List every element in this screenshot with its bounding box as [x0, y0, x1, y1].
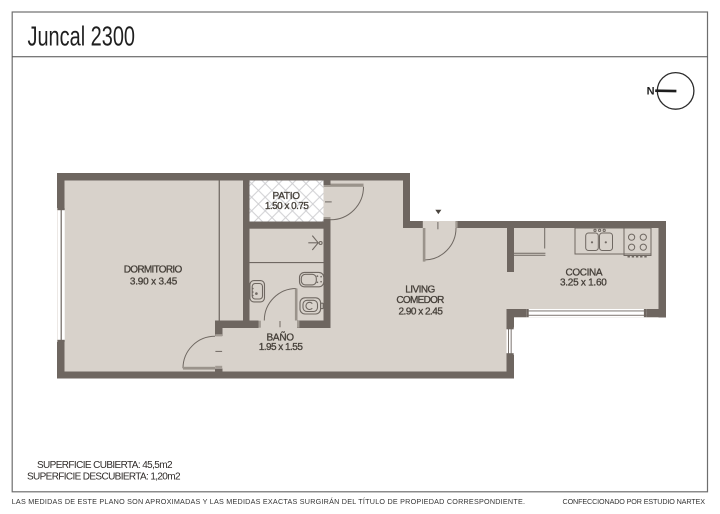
svg-text:N: N [647, 86, 655, 98]
svg-text:LAS MEDIDAS DE ESTE PLANO SON: LAS MEDIDAS DE ESTE PLANO SON APROXIMADA… [12, 497, 525, 506]
svg-text:1.95 x 1.55: 1.95 x 1.55 [259, 342, 304, 353]
svg-text:3.25 x 1.60: 3.25 x 1.60 [560, 277, 607, 288]
svg-text:SUPERFICIE CUBIERTA: 45,5m2: SUPERFICIE CUBIERTA: 45,5m2 [37, 460, 173, 471]
svg-text:LIVING: LIVING [405, 284, 435, 295]
svg-text:3.90 x 3.45: 3.90 x 3.45 [130, 276, 178, 287]
svg-text:CONFECCIONADO POR ESTUDIO NART: CONFECCIONADO POR ESTUDIO NARTEX [563, 497, 706, 506]
svg-text:Juncal 2300: Juncal 2300 [28, 21, 136, 52]
svg-text:COMEDOR: COMEDOR [396, 295, 444, 306]
svg-text:DORMITORIO: DORMITORIO [124, 264, 183, 275]
svg-text:2.90 x 2.45: 2.90 x 2.45 [399, 307, 444, 318]
svg-text:SUPERFICIE DESCUBIERTA: 1,20m2: SUPERFICIE DESCUBIERTA: 1,20m2 [27, 471, 181, 482]
svg-text:1.50 x 0.75: 1.50 x 0.75 [265, 201, 309, 212]
